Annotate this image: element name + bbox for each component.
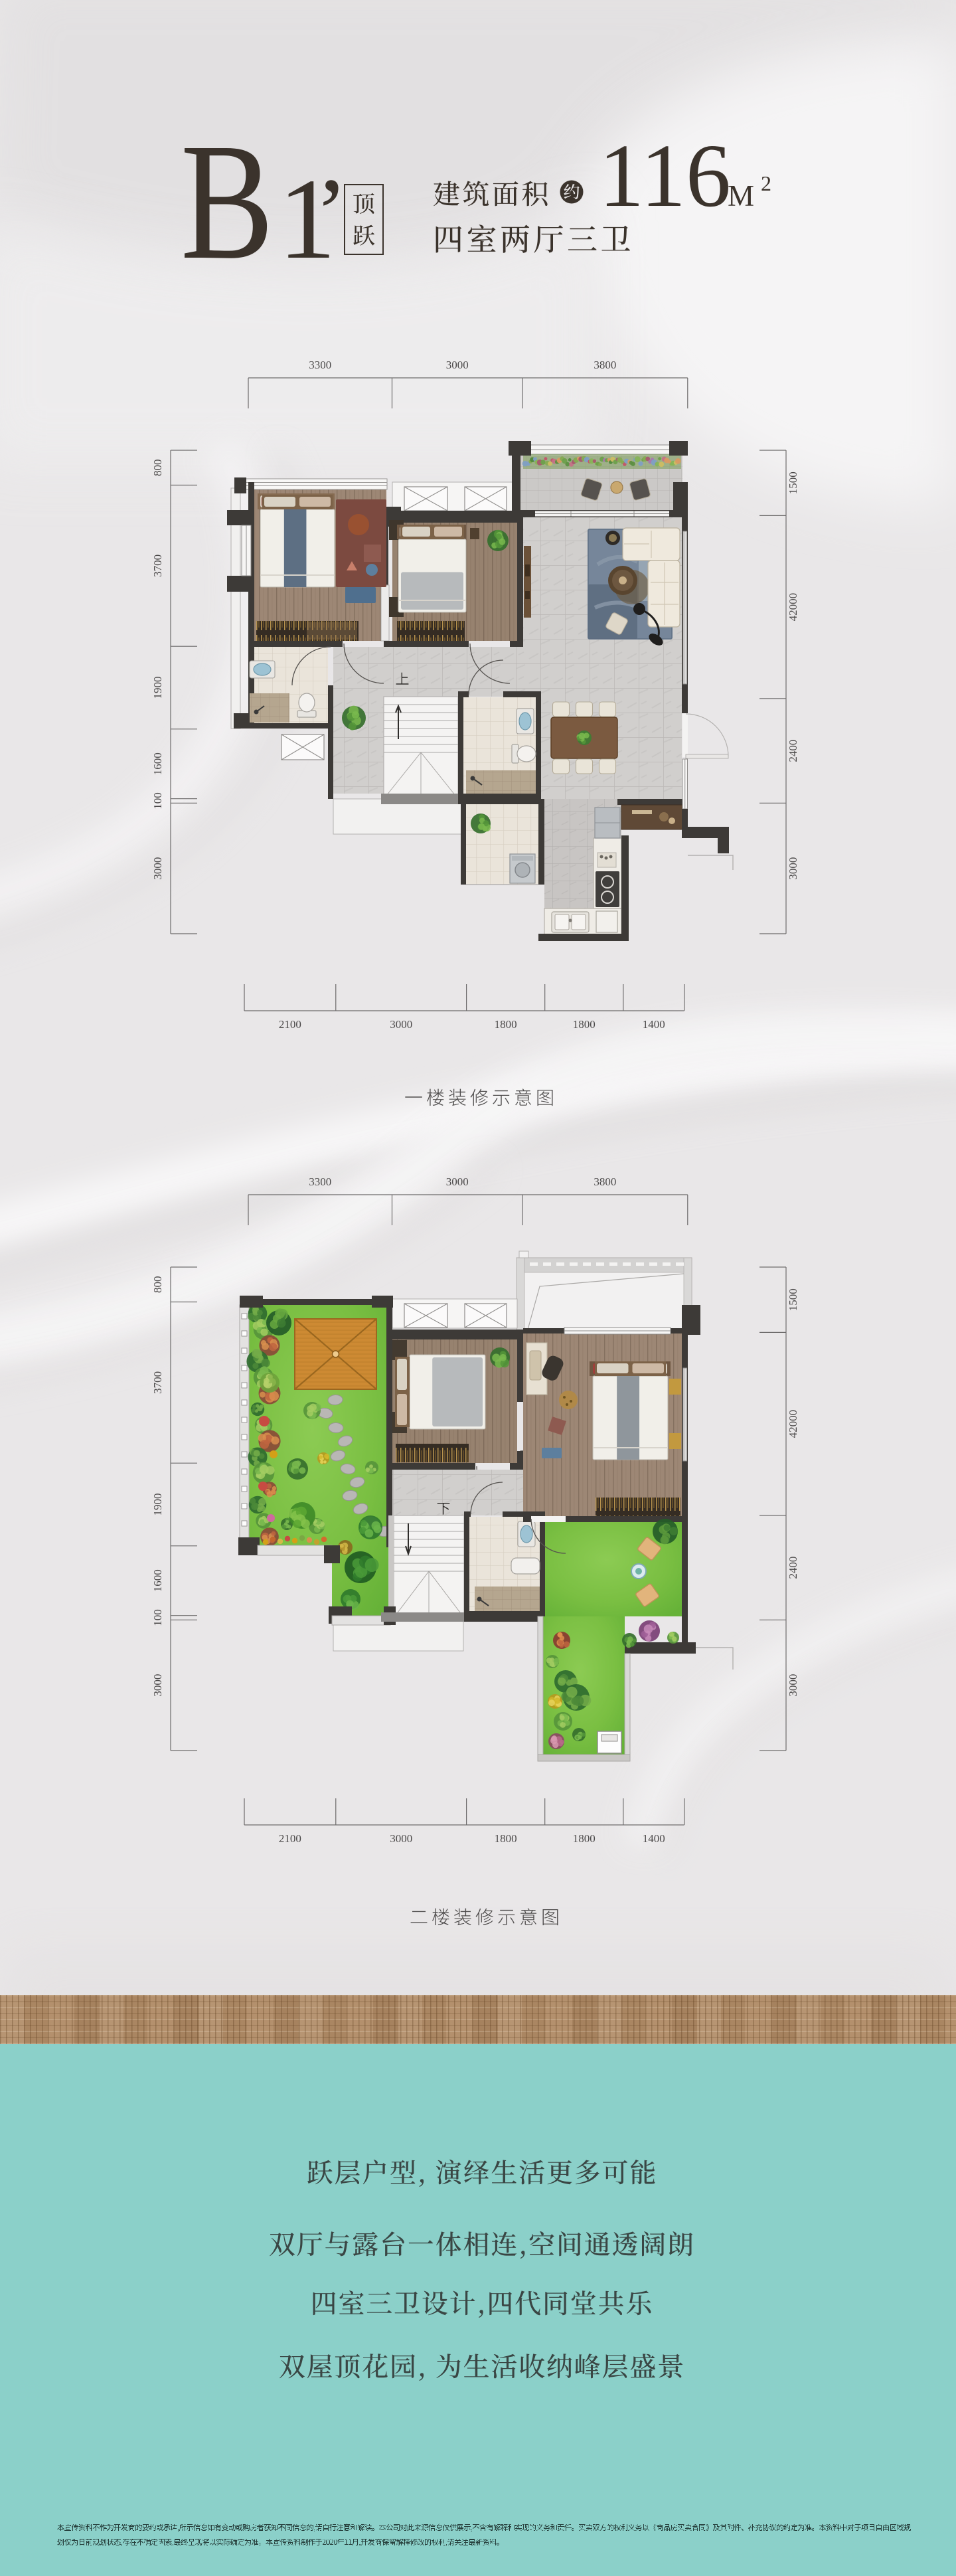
svg-text:3300: 3300 <box>309 1175 331 1188</box>
svg-text:1400: 1400 <box>643 1018 665 1031</box>
svg-text:800: 800 <box>151 460 164 477</box>
svg-text:3800: 3800 <box>594 359 616 371</box>
svg-text:1800: 1800 <box>573 1018 596 1031</box>
svg-text:3700: 3700 <box>151 555 164 577</box>
svg-text:3000: 3000 <box>446 1175 469 1188</box>
svg-text:2: 2 <box>761 171 771 195</box>
svg-text:42000: 42000 <box>787 593 799 622</box>
svg-text:3700: 3700 <box>151 1371 164 1394</box>
svg-text:1600: 1600 <box>151 1569 164 1592</box>
svg-text:2400: 2400 <box>787 1557 799 1579</box>
svg-text:3300: 3300 <box>309 359 331 371</box>
svg-text:100: 100 <box>151 792 164 810</box>
svg-text:1800: 1800 <box>495 1832 517 1845</box>
svg-text:1500: 1500 <box>787 1288 799 1311</box>
svg-text:M: M <box>728 179 754 213</box>
svg-text:100: 100 <box>151 1609 164 1626</box>
svg-text:1800: 1800 <box>573 1832 596 1845</box>
svg-text:3000: 3000 <box>151 1674 164 1697</box>
svg-text:3000: 3000 <box>787 857 799 880</box>
svg-text:3000: 3000 <box>151 857 164 880</box>
svg-text:3000: 3000 <box>390 1832 412 1845</box>
svg-text:2100: 2100 <box>279 1832 301 1845</box>
svg-text:42000: 42000 <box>787 1410 799 1438</box>
svg-text:2100: 2100 <box>279 1018 301 1031</box>
svg-text:3000: 3000 <box>446 359 469 371</box>
svg-text:116: 116 <box>599 126 731 226</box>
svg-text:800: 800 <box>151 1276 164 1294</box>
svg-text:1400: 1400 <box>643 1832 665 1845</box>
svg-text:1600: 1600 <box>151 752 164 775</box>
svg-text:1900: 1900 <box>151 677 164 699</box>
svg-text:2400: 2400 <box>787 740 799 762</box>
svg-text:3800: 3800 <box>594 1175 616 1188</box>
svg-text:1800: 1800 <box>495 1018 517 1031</box>
svg-text:3000: 3000 <box>787 1674 799 1697</box>
svg-text:1500: 1500 <box>787 472 799 494</box>
svg-text:3000: 3000 <box>390 1018 412 1031</box>
svg-text:1900: 1900 <box>151 1494 164 1516</box>
